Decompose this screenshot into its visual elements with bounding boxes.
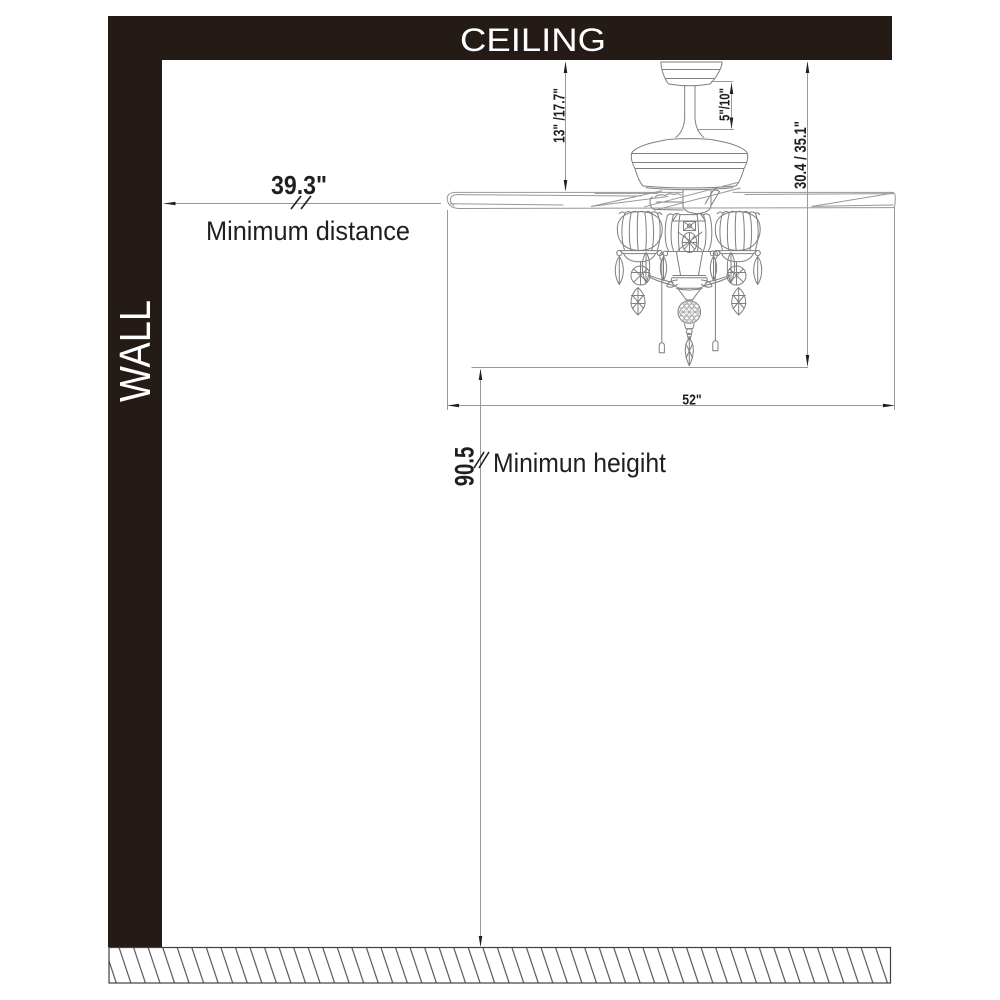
svg-text:WALL: WALL	[111, 300, 160, 402]
svg-text:5"/10": 5"/10"	[717, 88, 734, 121]
svg-text:39.3": 39.3"	[271, 170, 327, 200]
svg-text:13" /17.7": 13" /17.7"	[552, 88, 569, 143]
svg-text:Minimun heigiht: Minimun heigiht	[493, 448, 666, 478]
svg-text:30.4 / 35.1": 30.4 / 35.1"	[792, 121, 810, 189]
svg-text:52": 52"	[682, 393, 702, 409]
svg-text:CEILING: CEILING	[460, 22, 606, 58]
svg-text:Minimum distance: Minimum distance	[206, 216, 410, 246]
